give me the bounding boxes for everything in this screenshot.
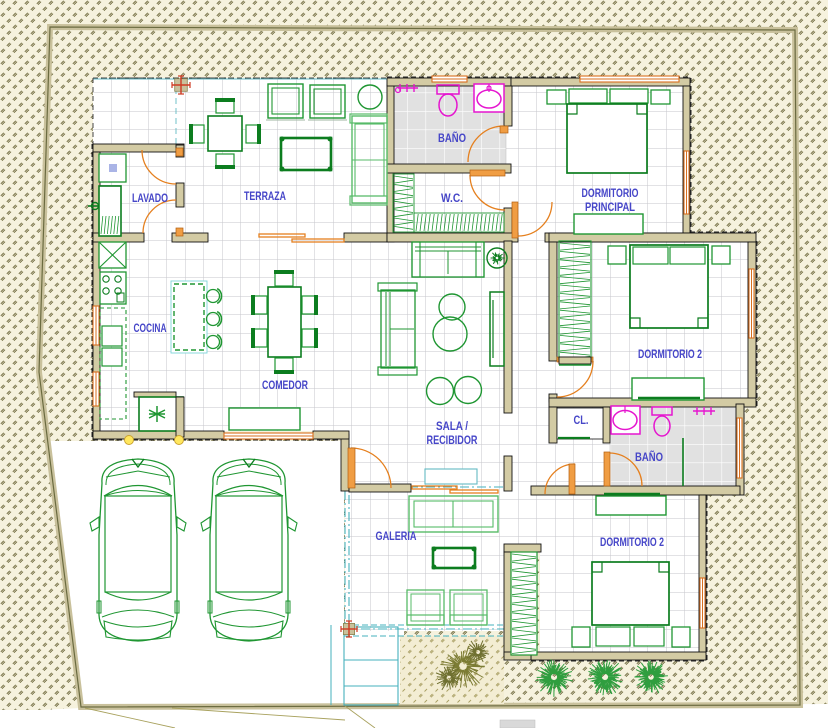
svg-text:PRINCIPAL: PRINCIPAL bbox=[585, 200, 635, 214]
svg-text:LAVADO: LAVADO bbox=[132, 191, 168, 205]
svg-text:W.C.: W.C. bbox=[441, 191, 463, 205]
svg-text:TERRAZA: TERRAZA bbox=[244, 189, 286, 203]
svg-text:DORMITORIO 2: DORMITORIO 2 bbox=[638, 347, 702, 361]
svg-text:BAÑO: BAÑO bbox=[438, 130, 466, 145]
svg-text:DORMITORIO: DORMITORIO bbox=[582, 186, 639, 200]
svg-text:SALA /: SALA / bbox=[436, 419, 469, 433]
svg-text:BAÑO: BAÑO bbox=[635, 449, 663, 464]
svg-text:COCINA: COCINA bbox=[134, 321, 167, 335]
svg-text:CL.: CL. bbox=[574, 413, 589, 427]
svg-text:RECIBIDOR: RECIBIDOR bbox=[427, 433, 478, 447]
svg-text:COMEDOR: COMEDOR bbox=[262, 378, 308, 392]
svg-text:DORMITORIO 2: DORMITORIO 2 bbox=[600, 535, 664, 549]
svg-text:GALERIA: GALERIA bbox=[376, 529, 417, 543]
